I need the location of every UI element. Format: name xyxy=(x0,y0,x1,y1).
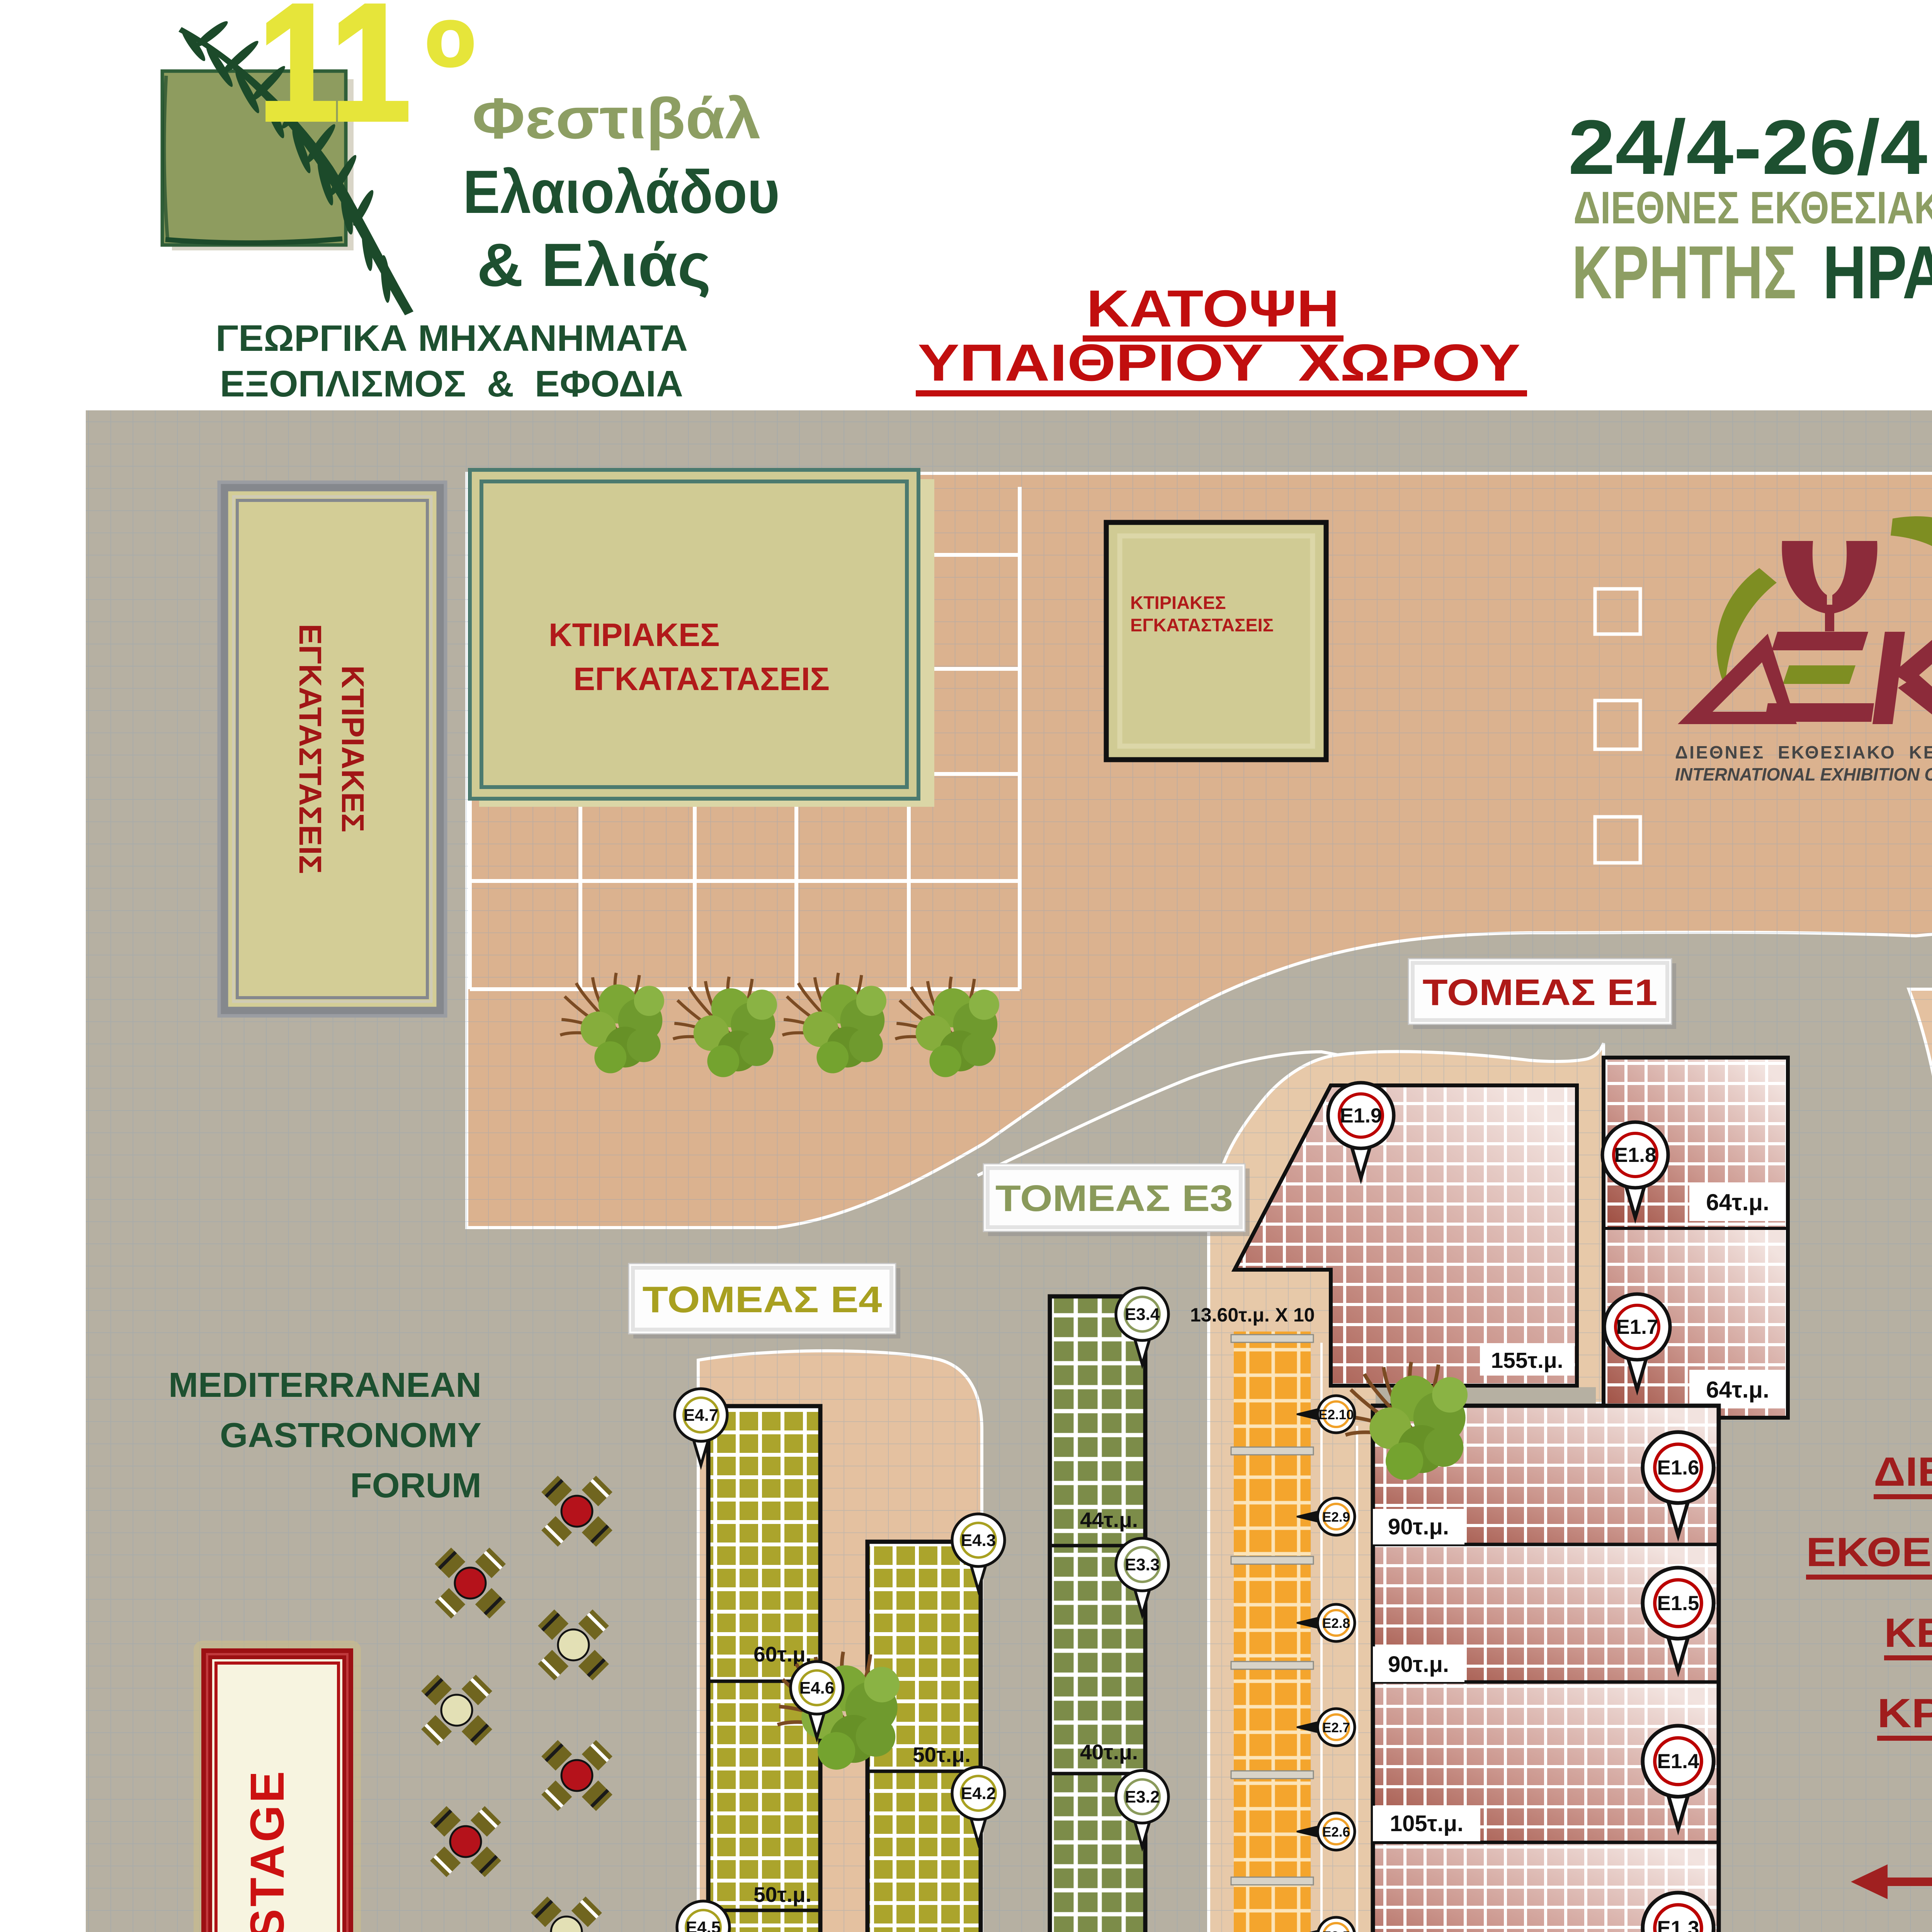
svg-text:o: o xyxy=(425,0,476,83)
svg-text:MEDITERRANEAN: MEDITERRANEAN xyxy=(168,1366,481,1405)
svg-text:ΕΓΚΑΤΑΣΤΑΣΕΙΣ: ΕΓΚΑΤΑΣΤΑΣΕΙΣ xyxy=(293,624,328,874)
svg-text:ΕΓΚΑΤΑΣΤΑΣΕΙΣ: ΕΓΚΑΤΑΣΤΑΣΕΙΣ xyxy=(1130,615,1274,635)
svg-text:GASTRONOMY: GASTRONOMY xyxy=(220,1416,481,1455)
svg-text:ΥΠΑΙΘΡΙΟΥ ΧΩΡΟΥ: ΥΠΑΙΘΡΙΟΥ ΧΩΡΟΥ xyxy=(918,333,1520,392)
svg-text:E2.5: E2.5 xyxy=(1322,1929,1350,1932)
svg-text:ΤΟΜΕΑΣ Ε1: ΤΟΜΕΑΣ Ε1 xyxy=(1423,972,1658,1013)
svg-text:FORUM: FORUM xyxy=(350,1466,481,1505)
svg-text:105τ.μ.: 105τ.μ. xyxy=(1390,1811,1463,1836)
svg-text:ΗΡΑΚΛΕΙΟ: ΗΡΑΚΛΕΙΟ xyxy=(1823,230,1932,315)
svg-text:ΕΞΟΠΛΙΣΜΟΣ & ΕΦΟΔΙΑ: ΕΞΟΠΛΙΣΜΟΣ & ΕΦΟΔΙΑ xyxy=(220,363,683,405)
svg-text:E1.4: E1.4 xyxy=(1657,1750,1699,1773)
svg-text:E1.3: E1.3 xyxy=(1657,1917,1699,1932)
svg-text:155τ.μ.: 155τ.μ. xyxy=(1491,1348,1563,1373)
svg-text:24/4-26/4: 24/4-26/4 xyxy=(1568,104,1927,190)
svg-text:E2.9: E2.9 xyxy=(1322,1510,1350,1525)
svg-text:ΚΤΙΡΙΑΚΕΣ: ΚΤΙΡΙΑΚΕΣ xyxy=(1130,592,1226,613)
svg-text:E1.5: E1.5 xyxy=(1657,1592,1699,1615)
svg-text:& Ελιάς: & Ελιάς xyxy=(477,231,711,299)
svg-text:ΚΡΗΤΗΣ: ΚΡΗΤΗΣ xyxy=(1877,1690,1932,1736)
svg-text:E3.3: E3.3 xyxy=(1125,1555,1160,1574)
svg-text:E2.8: E2.8 xyxy=(1322,1616,1350,1631)
svg-text:E4.2: E4.2 xyxy=(961,1784,996,1803)
svg-text:E4.3: E4.3 xyxy=(961,1531,996,1550)
svg-text:ΓΕΩΡΓΙΚΑ ΜΗΧΑΝΗΜΑΤΑ: ΓΕΩΡΓΙΚΑ ΜΗΧΑΝΗΜΑΤΑ xyxy=(216,318,688,359)
svg-text:90τ.μ.: 90τ.μ. xyxy=(1388,1652,1449,1677)
svg-text:ΔΙΕΘΝΕΣ ΕΚΘΕΣΙΑΚΟ ΚΕΝΤΡΟ: ΔΙΕΘΝΕΣ ΕΚΘΕΣΙΑΚΟ ΚΕΝΤΡΟ xyxy=(1573,182,1932,233)
svg-text:E3.2: E3.2 xyxy=(1125,1787,1160,1806)
svg-text:90τ.μ.: 90τ.μ. xyxy=(1388,1514,1449,1539)
svg-text:ΚΤΙΡΙΑΚΕΣ: ΚΤΙΡΙΑΚΕΣ xyxy=(335,665,370,832)
svg-text:40τ.μ.: 40τ.μ. xyxy=(1080,1740,1138,1764)
svg-text:13.60τ.μ. X 10: 13.60τ.μ. X 10 xyxy=(1190,1304,1315,1326)
svg-text:STAGE: STAGE xyxy=(241,1769,294,1932)
svg-text:Ελαιολάδου: Ελαιολάδου xyxy=(463,158,780,226)
svg-text:E4.5: E4.5 xyxy=(686,1918,721,1932)
svg-text:ΔΙΕΘΝΕΣ: ΔΙΕΘΝΕΣ xyxy=(1874,1449,1932,1495)
svg-text:50τ.μ.: 50τ.μ. xyxy=(913,1743,971,1767)
svg-text:E2.10: E2.10 xyxy=(1318,1407,1354,1422)
svg-text:E4.7: E4.7 xyxy=(684,1406,719,1425)
svg-text:E1.6: E1.6 xyxy=(1657,1456,1699,1479)
svg-text:64τ.μ.: 64τ.μ. xyxy=(1706,1189,1769,1215)
svg-text:44τ.μ.: 44τ.μ. xyxy=(1080,1508,1138,1532)
svg-text:E4.6: E4.6 xyxy=(799,1679,835,1697)
svg-text:E1.7: E1.7 xyxy=(1616,1316,1658,1338)
svg-text:64τ.μ.: 64τ.μ. xyxy=(1706,1377,1769,1403)
svg-text:E2.6: E2.6 xyxy=(1322,1825,1350,1840)
svg-text:E1.9: E1.9 xyxy=(1340,1104,1382,1127)
svg-text:E3.4: E3.4 xyxy=(1125,1305,1160,1324)
svg-text:ΕΚΘΕΣΙΑΚΟ: ΕΚΘΕΣΙΑΚΟ xyxy=(1806,1529,1932,1575)
svg-text:ΚΤΙΡΙΑΚΕΣ: ΚΤΙΡΙΑΚΕΣ xyxy=(549,617,719,653)
svg-text:50τ.μ.: 50τ.μ. xyxy=(753,1883,811,1906)
svg-text:E1.8: E1.8 xyxy=(1614,1144,1656,1167)
svg-text:ΤΟΜΕΑΣ Ε3: ΤΟΜΕΑΣ Ε3 xyxy=(995,1178,1233,1219)
svg-text:ΚΑΤΟΨΗ: ΚΑΤΟΨΗ xyxy=(1087,279,1340,338)
svg-text:INTERNATIONAL EXHIBITION CENTE: INTERNATIONAL EXHIBITION CENTER OF CRETE xyxy=(1675,764,1932,784)
svg-text:ΤΟΜΕΑΣ Ε4: ΤΟΜΕΑΣ Ε4 xyxy=(643,1279,882,1320)
svg-text:Φεστιβάλ: Φεστιβάλ xyxy=(472,86,761,151)
svg-text:ΕΓΚΑΤΑΣΤΑΣΕΙΣ: ΕΓΚΑΤΑΣΤΑΣΕΙΣ xyxy=(573,661,830,697)
svg-text:60τ.μ.: 60τ.μ. xyxy=(753,1642,811,1666)
svg-text:ΚΕΝΤΡΟ: ΚΕΝΤΡΟ xyxy=(1884,1610,1932,1656)
svg-text:11: 11 xyxy=(258,0,411,155)
svg-text:ΚΡΗΤΗΣ: ΚΡΗΤΗΣ xyxy=(1572,230,1796,315)
svg-text:E2.7: E2.7 xyxy=(1322,1720,1350,1735)
